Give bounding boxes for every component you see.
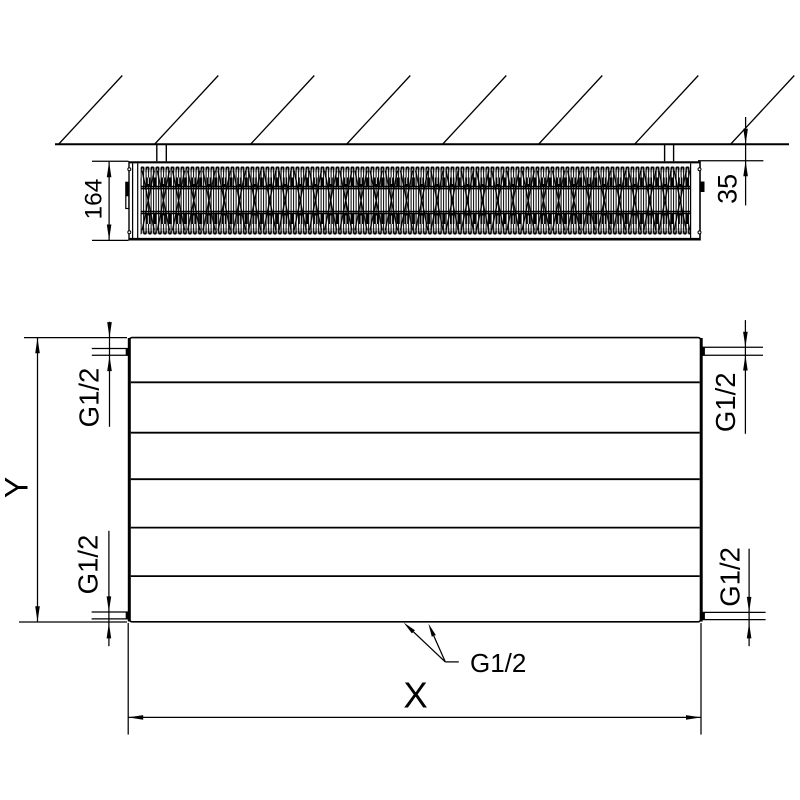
svg-text:G1/2: G1/2 (74, 368, 105, 428)
svg-text:164: 164 (81, 179, 108, 220)
svg-text:Y: Y (0, 477, 35, 498)
svg-text:G1/2: G1/2 (470, 648, 526, 678)
svg-text:G1/2: G1/2 (73, 535, 104, 595)
svg-text:G1/2: G1/2 (710, 372, 741, 432)
svg-text:X: X (403, 675, 427, 716)
svg-text:G1/2: G1/2 (714, 547, 745, 607)
svg-text:35: 35 (713, 174, 743, 204)
